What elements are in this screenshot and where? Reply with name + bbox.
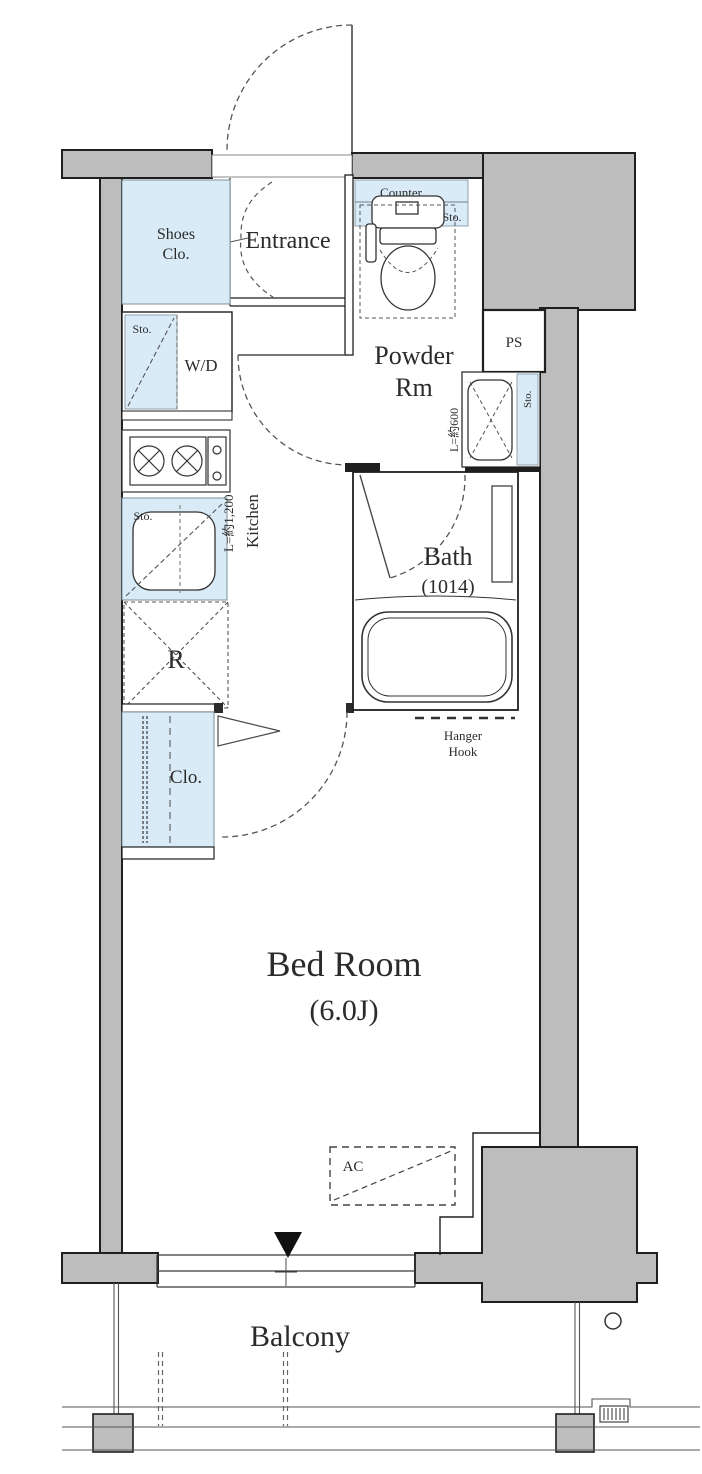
vanity-length-label: L=約600 xyxy=(446,408,461,452)
balcony-label: Balcony xyxy=(250,1320,350,1353)
bath-counter xyxy=(492,486,512,582)
kitchen-sink xyxy=(133,512,215,590)
closet-sill xyxy=(122,847,214,859)
vanity-storage-label: Sto. xyxy=(522,390,534,408)
toilet xyxy=(366,196,444,310)
balcony-drain xyxy=(600,1406,628,1422)
wall-right-strip xyxy=(540,308,578,1147)
shoes-closet-label-1: Shoes xyxy=(157,226,195,243)
bedroom-window xyxy=(157,1255,415,1287)
kitchen-length-label: L=約1,200 xyxy=(221,494,236,552)
wall-column-top-right xyxy=(483,153,635,310)
orientation-triangle xyxy=(274,1232,302,1258)
stove xyxy=(122,430,230,492)
bath-top-wall-left xyxy=(345,463,380,472)
bedroom-size-label: (6.0J) xyxy=(309,994,378,1027)
wd-storage-label: Sto. xyxy=(132,322,151,336)
hall-door-swing-arc xyxy=(238,355,348,465)
toilet-storage-label: Sto. xyxy=(442,210,461,224)
sink-storage-label: Sto. xyxy=(133,509,152,523)
closet-label: Clo. xyxy=(170,767,202,788)
powder-room-label-2: Rm xyxy=(395,373,433,402)
balcony-hatch-marks xyxy=(159,1352,288,1426)
bath-size-label: (1014) xyxy=(421,576,474,598)
wall-left xyxy=(100,178,122,1255)
wd-label: W/D xyxy=(184,356,217,375)
washbasin xyxy=(468,380,512,460)
wall-top-left xyxy=(62,150,212,178)
balcony-pipe-circle xyxy=(605,1313,621,1329)
refrigerator-label: R xyxy=(167,645,185,674)
bedroom-label: Bed Room xyxy=(266,944,421,984)
entrance-label: Entrance xyxy=(245,228,330,254)
corridor-wall-left xyxy=(122,704,222,712)
balcony-pillar-left xyxy=(93,1414,133,1452)
ac-label: AC xyxy=(343,1159,364,1175)
floor-plan-page: PS Entrance Shoes Clo. Sto. W/D Sto. L=約… xyxy=(0,0,702,1474)
wall-top-middle xyxy=(352,153,483,178)
wall-column-bottom-right xyxy=(415,1147,657,1302)
kitchen-label: Kitchen xyxy=(243,494,262,548)
bedroom-door-leaf xyxy=(218,716,280,746)
bath-label: Bath xyxy=(423,542,472,571)
powder-room-label-1: Powder xyxy=(374,341,454,370)
entrance-threshold xyxy=(212,155,352,177)
hanger-hook-label-2: Hook xyxy=(449,744,478,759)
wd-sill xyxy=(122,411,232,420)
vanity-storage-blue xyxy=(517,374,538,465)
hanger-hook-label-1: Hanger xyxy=(444,728,483,743)
balcony-pillar-right xyxy=(556,1414,594,1452)
wall-bottom-left-block xyxy=(62,1253,158,1283)
door-jamb-left xyxy=(214,703,223,713)
powder-left-wall xyxy=(345,175,353,355)
shoes-closet-label-2: Clo. xyxy=(162,246,189,263)
entrance-door-swing-arc xyxy=(227,25,352,150)
bathtub-outer xyxy=(362,612,512,702)
pipe-space-label: PS xyxy=(506,335,523,351)
floor-plan: PS Entrance Shoes Clo. Sto. W/D Sto. L=約… xyxy=(0,0,702,1474)
